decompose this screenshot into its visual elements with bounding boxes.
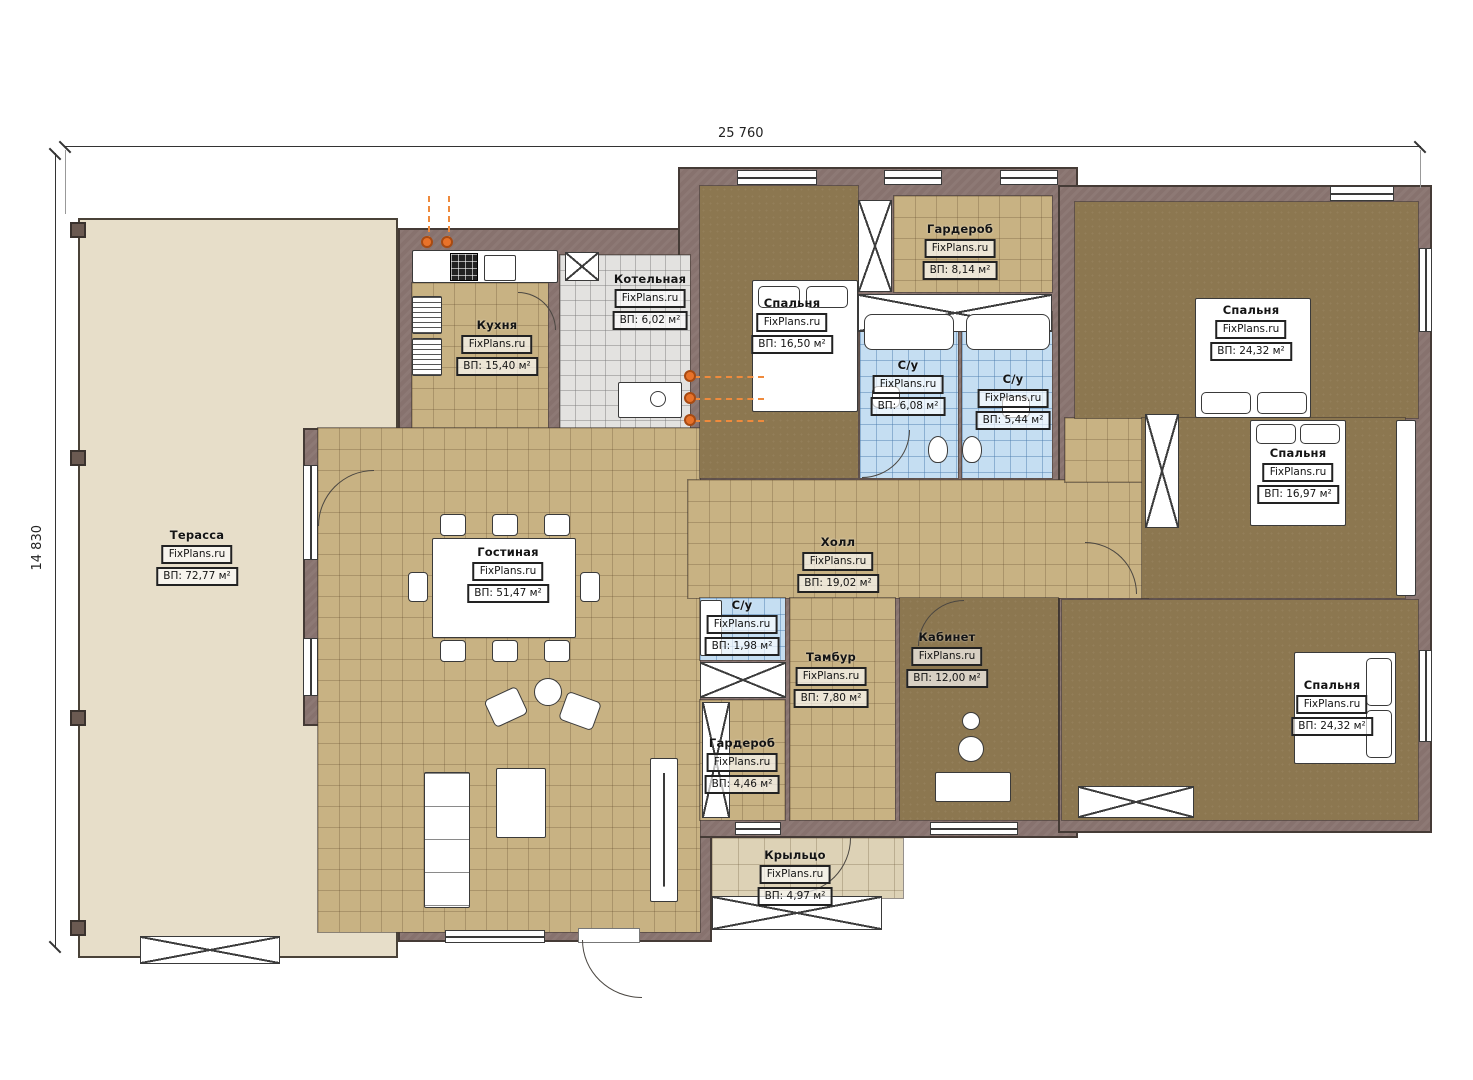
- room-area: ВП: 15,40 м²: [456, 357, 538, 376]
- room-area: ВП: 16,97 м²: [1257, 485, 1339, 504]
- room-name: С/у: [1003, 372, 1024, 386]
- watermark: FixPlans.ru: [1263, 463, 1334, 482]
- chair: [580, 572, 600, 602]
- room-name: Гардероб: [709, 736, 775, 750]
- room-name: Гардероб: [927, 222, 993, 236]
- watermark: FixPlans.ru: [162, 545, 233, 564]
- heating-pipe-icon: [684, 392, 696, 404]
- room-name: Котельная: [614, 272, 686, 286]
- heating-pipe-icon: [684, 414, 696, 426]
- room-label-wardrobe-top: Гардероб FixPlans.ru ВП: 8,14 м²: [923, 222, 998, 280]
- watermark: FixPlans.ru: [760, 865, 831, 884]
- office-desk: [935, 772, 1011, 802]
- chair: [440, 514, 466, 536]
- room-name: Спальня: [1270, 446, 1327, 460]
- kitchen-appliance: [412, 296, 442, 334]
- room-label-office: Кабинет FixPlans.ru ВП: 12,00 м²: [906, 630, 988, 688]
- watermark: FixPlans.ru: [873, 375, 944, 394]
- closet-bedroom-4: [1078, 786, 1194, 818]
- closet-hall: [1145, 414, 1179, 528]
- chair: [492, 640, 518, 662]
- dimension-line-top: [65, 146, 1421, 147]
- window: [735, 822, 781, 835]
- bathtub-left: [864, 314, 954, 350]
- room-label-living: Гостиная FixPlans.ru ВП: 51,47 м²: [467, 545, 549, 603]
- window: [303, 638, 318, 696]
- heating-pipe-icon: [684, 370, 696, 382]
- room-name: Спальня: [1223, 303, 1280, 317]
- coffee-table: [496, 768, 546, 838]
- kitchen-appliance: [412, 338, 442, 376]
- room-name: Тамбур: [806, 650, 856, 664]
- heating-pipe-line: [694, 376, 764, 378]
- room-label-bedroom-3: Спальня FixPlans.ru ВП: 16,97 м²: [1257, 446, 1339, 504]
- dimension-width-label: 25 760: [718, 126, 764, 141]
- watermark: FixPlans.ru: [1216, 320, 1287, 339]
- room-label-boiler: Котельная FixPlans.ru ВП: 6,02 м²: [613, 272, 688, 330]
- watermark: FixPlans.ru: [796, 667, 867, 686]
- room-label-porch: Крыльцо FixPlans.ru ВП: 4,97 м²: [758, 848, 833, 906]
- door-arc: [582, 940, 642, 998]
- watermark: FixPlans.ru: [803, 552, 874, 571]
- closet-vertical: [858, 200, 892, 292]
- pillow: [1256, 424, 1296, 444]
- room-area: ВП: 8,14 м²: [923, 261, 998, 280]
- window: [1000, 170, 1058, 185]
- room-area: ВП: 24,32 м²: [1291, 717, 1373, 736]
- room-name: Спальня: [764, 296, 821, 310]
- window: [1419, 248, 1432, 332]
- room-label-wardrobe-bottom: Гардероб FixPlans.ru ВП: 4,46 м²: [705, 736, 780, 794]
- room-label-tambur: Тамбур FixPlans.ru ВП: 7,80 м²: [794, 650, 869, 708]
- room-area: ВП: 72,77 м²: [156, 567, 238, 586]
- watermark: FixPlans.ru: [707, 615, 778, 634]
- window: [884, 170, 942, 185]
- window: [737, 170, 817, 185]
- window: [445, 930, 545, 943]
- room-name: Холл: [821, 535, 855, 549]
- side-table: [534, 678, 562, 706]
- room-name: С/у: [732, 598, 753, 612]
- window: [1419, 650, 1432, 742]
- room-area: ВП: 1,98 м²: [705, 637, 780, 656]
- room-name: С/у: [898, 358, 919, 372]
- room-label-wc-left: С/у FixPlans.ru ВП: 6,08 м²: [871, 358, 946, 416]
- vent-riser-line: [448, 196, 450, 242]
- room-area: ВП: 24,32 м²: [1210, 342, 1292, 361]
- watermark: FixPlans.ru: [1297, 695, 1368, 714]
- room-area: ВП: 7,80 м²: [794, 689, 869, 708]
- room-name: Кухня: [477, 318, 518, 332]
- chair: [408, 572, 428, 602]
- room-label-bedroom-4: Спальня FixPlans.ru ВП: 24,32 м²: [1291, 678, 1373, 736]
- closet-between: [700, 662, 786, 698]
- terrace-post: [70, 450, 86, 466]
- room-area: ВП: 5,44 м²: [976, 411, 1051, 430]
- chair: [544, 514, 570, 536]
- toilet-left-icon: [928, 436, 948, 463]
- room-area: ВП: 6,08 м²: [871, 397, 946, 416]
- pillow: [1300, 424, 1340, 444]
- vent-riser-line: [428, 196, 430, 242]
- pillow: [1201, 392, 1251, 414]
- chimney-shaft: [1396, 420, 1416, 596]
- room-name: Крыльцо: [764, 848, 826, 862]
- kitchen-cabinet: [565, 252, 599, 281]
- bathtub-right: [966, 314, 1050, 350]
- watermark: FixPlans.ru: [912, 647, 983, 666]
- watermark: FixPlans.ru: [615, 289, 686, 308]
- chair: [544, 640, 570, 662]
- kitchen-sink: [484, 255, 516, 281]
- chair: [492, 514, 518, 536]
- room-living: [318, 428, 700, 932]
- room-hall-extension: [1065, 418, 1143, 482]
- watermark: FixPlans.ru: [462, 335, 533, 354]
- chair: [440, 640, 466, 662]
- room-label-bedroom-2: Спальня FixPlans.ru ВП: 24,32 м²: [1210, 303, 1292, 361]
- room-name: Гостиная: [477, 545, 538, 559]
- watermark: FixPlans.ru: [473, 562, 544, 581]
- office-plant-icon: [962, 712, 980, 730]
- dimension-line-left: [55, 153, 56, 948]
- room-area: ВП: 4,97 м²: [758, 887, 833, 906]
- room-area: ВП: 4,46 м²: [705, 775, 780, 794]
- room-label-terrace: Терасса FixPlans.ru ВП: 72,77 м²: [156, 528, 238, 586]
- terrace-stairs: [140, 936, 280, 964]
- terrace-post: [70, 222, 86, 238]
- room-label-bedroom-1: Спальня FixPlans.ru ВП: 16,50 м²: [751, 296, 833, 354]
- vent-riser-icon: [441, 236, 453, 248]
- room-name: Спальня: [1304, 678, 1361, 692]
- window: [1330, 186, 1394, 201]
- stove-icon: [450, 253, 478, 281]
- terrace-door-opening: [303, 465, 318, 560]
- room-label-wc-small: С/у FixPlans.ru ВП: 1,98 м²: [705, 598, 780, 656]
- sofa: [424, 772, 470, 908]
- room-area: ВП: 51,47 м²: [467, 584, 549, 603]
- terrace-post: [70, 920, 86, 936]
- office-chair: [958, 736, 984, 762]
- tv-cabinet: [650, 758, 678, 902]
- room-area: ВП: 12,00 м²: [906, 669, 988, 688]
- watermark: FixPlans.ru: [757, 313, 828, 332]
- pillow: [1257, 392, 1307, 414]
- watermark: FixPlans.ru: [978, 389, 1049, 408]
- extension-line: [65, 150, 66, 214]
- room-tambur: [790, 598, 895, 820]
- room-label-kitchen: Кухня FixPlans.ru ВП: 15,40 м²: [456, 318, 538, 376]
- room-label-hall: Холл FixPlans.ru ВП: 19,02 м²: [797, 535, 879, 593]
- toilet-right-icon: [962, 436, 982, 463]
- room-name: Терасса: [170, 528, 224, 542]
- boiler-dial-icon: [650, 391, 666, 407]
- dimension-height-label: 14 830: [30, 525, 45, 571]
- watermark: FixPlans.ru: [707, 753, 778, 772]
- watermark: FixPlans.ru: [925, 239, 996, 258]
- floor-plan-canvas: 25 760 14 830: [0, 0, 1473, 1080]
- room-hall: [688, 480, 1148, 598]
- room-label-wc-right: С/у FixPlans.ru ВП: 5,44 м²: [976, 372, 1051, 430]
- room-area: ВП: 19,02 м²: [797, 574, 879, 593]
- terrace-post: [70, 710, 86, 726]
- window: [930, 822, 1018, 835]
- vent-riser-icon: [421, 236, 433, 248]
- heating-pipe-line: [694, 420, 764, 422]
- room-name: Кабинет: [918, 630, 975, 644]
- room-area: ВП: 6,02 м²: [613, 311, 688, 330]
- room-area: ВП: 16,50 м²: [751, 335, 833, 354]
- heating-pipe-line: [694, 398, 764, 400]
- extension-line: [1420, 150, 1421, 188]
